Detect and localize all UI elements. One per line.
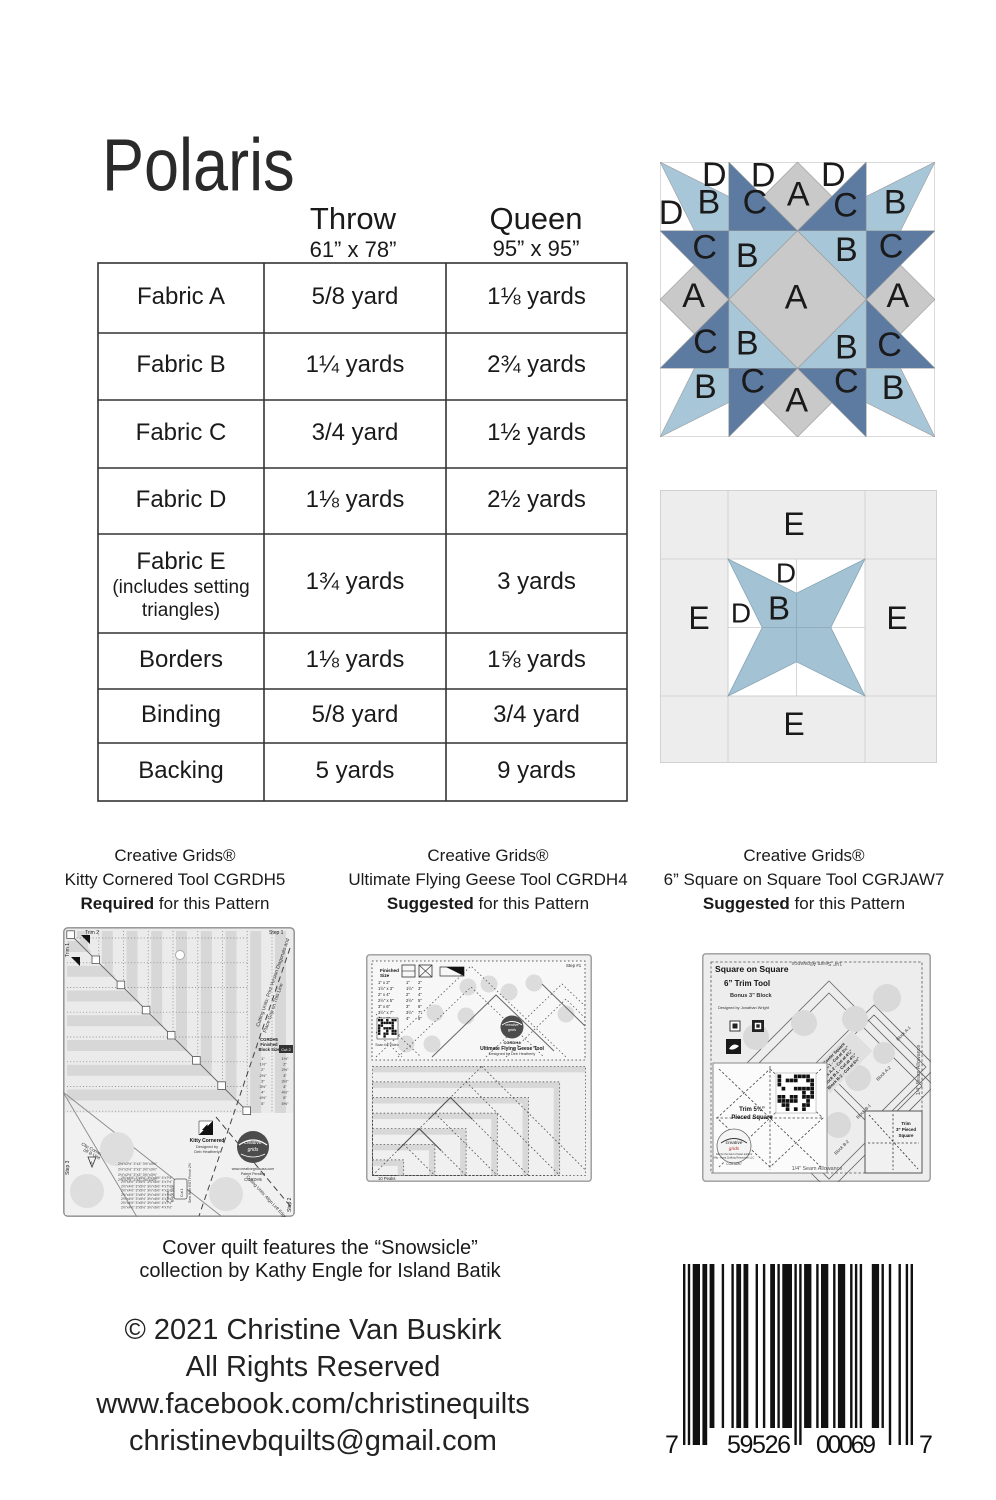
svg-text:59526: 59526 — [727, 1431, 791, 1459]
svg-text:00069: 00069 — [816, 1431, 876, 1459]
svg-text:7: 7 — [919, 1431, 933, 1459]
svg-text:7: 7 — [665, 1431, 679, 1459]
